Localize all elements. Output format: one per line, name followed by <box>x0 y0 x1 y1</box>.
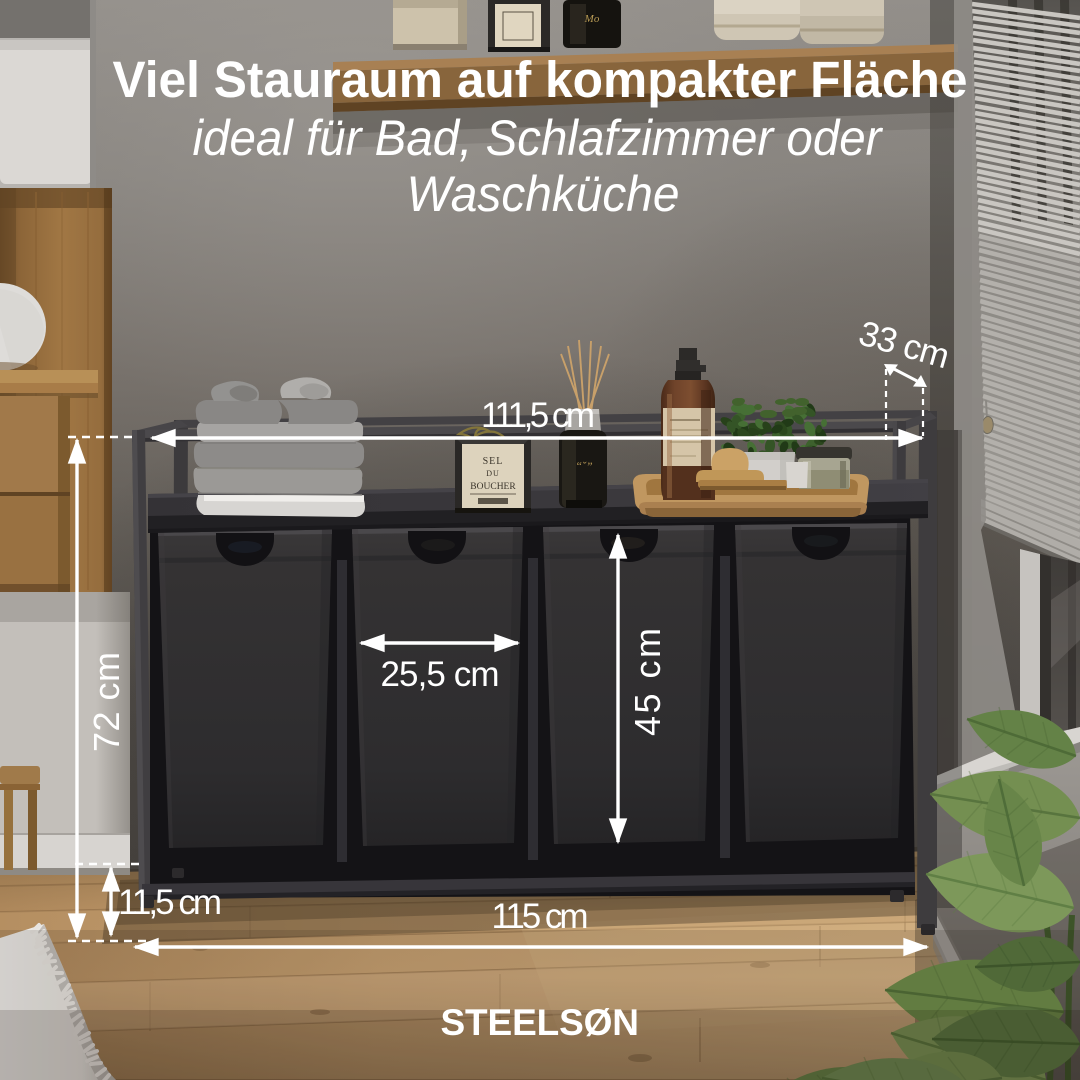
svg-text:ideal für Bad, Schlafzimmer od: ideal für Bad, Schlafzimmer oder <box>193 110 884 166</box>
svg-text:Viel Stauraum auf kompakter Fl: Viel Stauraum auf kompakter Fläche <box>113 51 968 108</box>
svg-text:72 cm: 72 cm <box>86 652 127 752</box>
svg-text:45 cm: 45 cm <box>627 628 668 736</box>
svg-text:25,5 cm: 25,5 cm <box>381 655 500 694</box>
svg-text:115 cm: 115 cm <box>492 897 589 936</box>
svg-text:111,5 cm: 111,5 cm <box>481 396 595 435</box>
svg-text:11,5 cm: 11,5 cm <box>118 883 222 922</box>
svg-text:STEELSØN: STEELSØN <box>441 1002 640 1043</box>
svg-text:Waschküche: Waschküche <box>407 166 680 222</box>
